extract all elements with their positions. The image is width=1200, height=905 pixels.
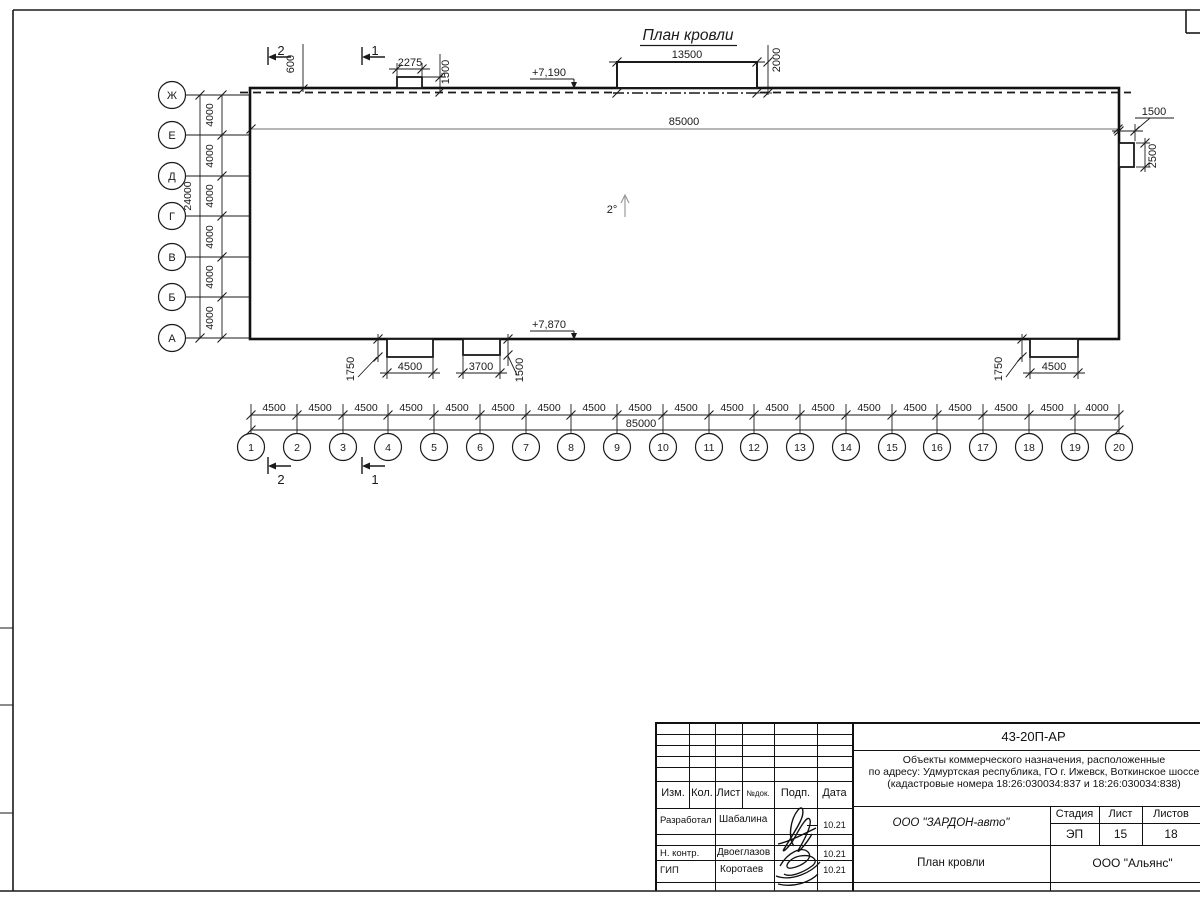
h-spacing-dim: 4500	[948, 402, 972, 414]
section-mark-2-label: 2	[277, 472, 284, 487]
drawing-sheet: План кровли 85000 2° 2 600	[0, 0, 1200, 900]
axis-bubble-5: 5	[431, 442, 437, 454]
row-role-razrabotal: Разработал	[660, 815, 712, 826]
signature-korotaev	[772, 842, 822, 892]
h-spacing-dim: 4500	[765, 402, 789, 414]
right-annotations: 1500 2500	[1112, 106, 1174, 172]
axis-bubble-4: 4	[385, 442, 391, 454]
col-header-data: Дата	[817, 787, 852, 799]
axis-bubble-7: 7	[523, 442, 529, 454]
bottom-protrusion-1	[387, 339, 433, 357]
dim-4500-box1: 4500	[398, 361, 422, 373]
axis-bubble-12: 12	[748, 442, 760, 454]
dim-1750-box1: 1750	[345, 357, 357, 381]
dim-2275: 2275	[398, 57, 422, 69]
v-spacing-dim: 4000	[204, 103, 216, 127]
dim-2500-right: 2500	[1147, 144, 1159, 168]
h-spacing-dim: 4500	[537, 402, 561, 414]
col-header-ndok: №док.	[742, 789, 774, 798]
col-header-podp: Подп.	[774, 787, 817, 799]
axis-bubble-d: Д	[168, 171, 176, 183]
axis-bubble-1: 1	[248, 442, 254, 454]
dim-1750-box3: 1750	[993, 357, 1005, 381]
h-spacing-dim: 4500	[399, 402, 423, 414]
row-role-gip: ГИП	[660, 865, 679, 876]
bottom-protrusion-2	[463, 339, 500, 355]
axis-bubble-g: Г	[169, 211, 175, 223]
bottom-protrusion-3	[1030, 339, 1078, 357]
axis-bubble-19: 19	[1069, 442, 1081, 454]
roof-hatch-large	[617, 62, 757, 88]
v-total-dim: 24000	[182, 181, 194, 210]
sheet-label: Лист	[1099, 808, 1142, 820]
h-spacing-dim: 4500	[857, 402, 881, 414]
axis-bubble-6: 6	[477, 442, 483, 454]
h-spacing-dim: 4500	[994, 402, 1018, 414]
h-spacing-dim: 4500	[674, 402, 698, 414]
axis-bubble-17: 17	[977, 442, 989, 454]
axis-bubble-15: 15	[886, 442, 898, 454]
axis-bubble-v: В	[168, 252, 175, 264]
col-header-izm: Изм.	[657, 787, 689, 799]
h-spacing-dim: 4500	[445, 402, 469, 414]
right-protrusion	[1119, 143, 1134, 167]
h-spacing-dim-last: 4000	[1085, 402, 1109, 414]
axis-bubble-2: 2	[294, 442, 300, 454]
row-name-korotaev: Коротаев	[720, 864, 763, 875]
roof-hatch-small	[397, 77, 422, 88]
project-line3: (кадастровые номера 18:26:030034:837 и 1…	[854, 778, 1200, 790]
company-name: ООО "ЗАРДОН-авто"	[852, 817, 1050, 829]
axis-bubble-8: 8	[568, 442, 574, 454]
h-total-dim: 85000	[626, 418, 657, 430]
project-line2: по адресу: Удмуртская республика, ГО г. …	[854, 766, 1200, 778]
v-spacing-dim: 4000	[204, 265, 216, 289]
h-spacing-dim: 4500	[720, 402, 744, 414]
sheets-value: 18	[1142, 827, 1200, 841]
row-name-dvoeglazov: Двоеглазов	[717, 847, 770, 858]
axis-bubble-3: 3	[340, 442, 346, 454]
drawing-title-group: План кровли	[640, 27, 737, 46]
section-mark-1-label: 1	[371, 472, 378, 487]
axis-bubble-10: 10	[657, 442, 669, 454]
col-header-list: Лист	[715, 787, 742, 799]
elevation-top: +7,190	[532, 67, 566, 79]
axis-bubble-zh: Ж	[167, 90, 177, 102]
dim-3700-box2: 3700	[469, 361, 493, 373]
section-mark-1-label: 1	[371, 43, 378, 58]
h-spacing-dim: 4500	[491, 402, 515, 414]
h-spacing-dim: 4500	[628, 402, 652, 414]
stage-label: Стадия	[1050, 808, 1099, 820]
axis-bubble-14: 14	[840, 442, 852, 454]
v-spacing-dim: 4000	[204, 144, 216, 168]
vertical-axes: Ж Е Д Г В Б А 4000 4000 4000 4000 4000 4…	[159, 82, 251, 352]
sheet-title: План кровли	[852, 857, 1050, 869]
row-date-3: 10.21	[817, 865, 852, 875]
doc-code: 43-20П-АР	[852, 729, 1200, 744]
roof-slope-label: 2°	[607, 204, 618, 216]
axis-bubble-20: 20	[1113, 442, 1125, 454]
ridge-dimension: 85000	[669, 116, 700, 128]
dim-4500-box3: 4500	[1042, 361, 1066, 373]
axis-bubble-13: 13	[794, 442, 806, 454]
dim-1500-right: 1500	[1142, 106, 1166, 118]
v-spacing-dim: 4000	[204, 184, 216, 208]
row-date-2: 10.21	[817, 849, 852, 859]
elevation-bottom: +7,870	[532, 319, 566, 331]
dim-600: 600	[285, 55, 297, 73]
section-mark-2-label: 2	[277, 43, 284, 58]
sheets-label: Листов	[1142, 808, 1200, 820]
h-spacing-dim: 4500	[354, 402, 378, 414]
h-spacing-dim: 4500	[262, 402, 286, 414]
title-block: Изм. Кол. Лист №док. Подп. Дата Разработ…	[655, 722, 1200, 891]
h-spacing-dim: 4500	[811, 402, 835, 414]
row-date-1: 10.21	[817, 820, 852, 830]
col-header-kol: Кол.	[689, 787, 715, 799]
axis-bubble-b: Б	[168, 292, 175, 304]
v-spacing-dim: 4000	[204, 306, 216, 330]
project-line1: Объекты коммерческого назначения, распол…	[854, 754, 1200, 766]
contractor-name: ООО "Альянс"	[1050, 856, 1200, 870]
h-spacing-dim: 4500	[582, 402, 606, 414]
row-role-nkontr: Н. контр.	[660, 848, 699, 859]
row-name-shabalina: Шабалина	[719, 814, 767, 825]
axis-bubble-e: Е	[168, 130, 175, 142]
dim-13500: 13500	[672, 49, 703, 61]
axis-bubble-16: 16	[931, 442, 943, 454]
v-spacing-dim: 4000	[204, 225, 216, 249]
h-spacing-dim: 4500	[903, 402, 927, 414]
axis-bubble-18: 18	[1023, 442, 1035, 454]
axis-bubble-11: 11	[704, 442, 715, 454]
axis-bubble-9: 9	[614, 442, 620, 454]
axis-bubble-a: А	[168, 333, 176, 345]
dim-1500-top: 1500	[440, 60, 452, 84]
stage-value: ЭП	[1050, 827, 1099, 841]
dim-1500-box2: 1500	[514, 358, 526, 382]
h-spacing-dim: 4500	[1040, 402, 1064, 414]
horizontal-axes: 4500 4500 4500 4500 4500 4500 4500 4500 …	[238, 402, 1133, 487]
h-spacing-dim: 4500	[308, 402, 332, 414]
dim-2000: 2000	[771, 48, 783, 72]
drawing-title: План кровли	[643, 27, 734, 44]
sheet-value: 15	[1099, 827, 1142, 841]
